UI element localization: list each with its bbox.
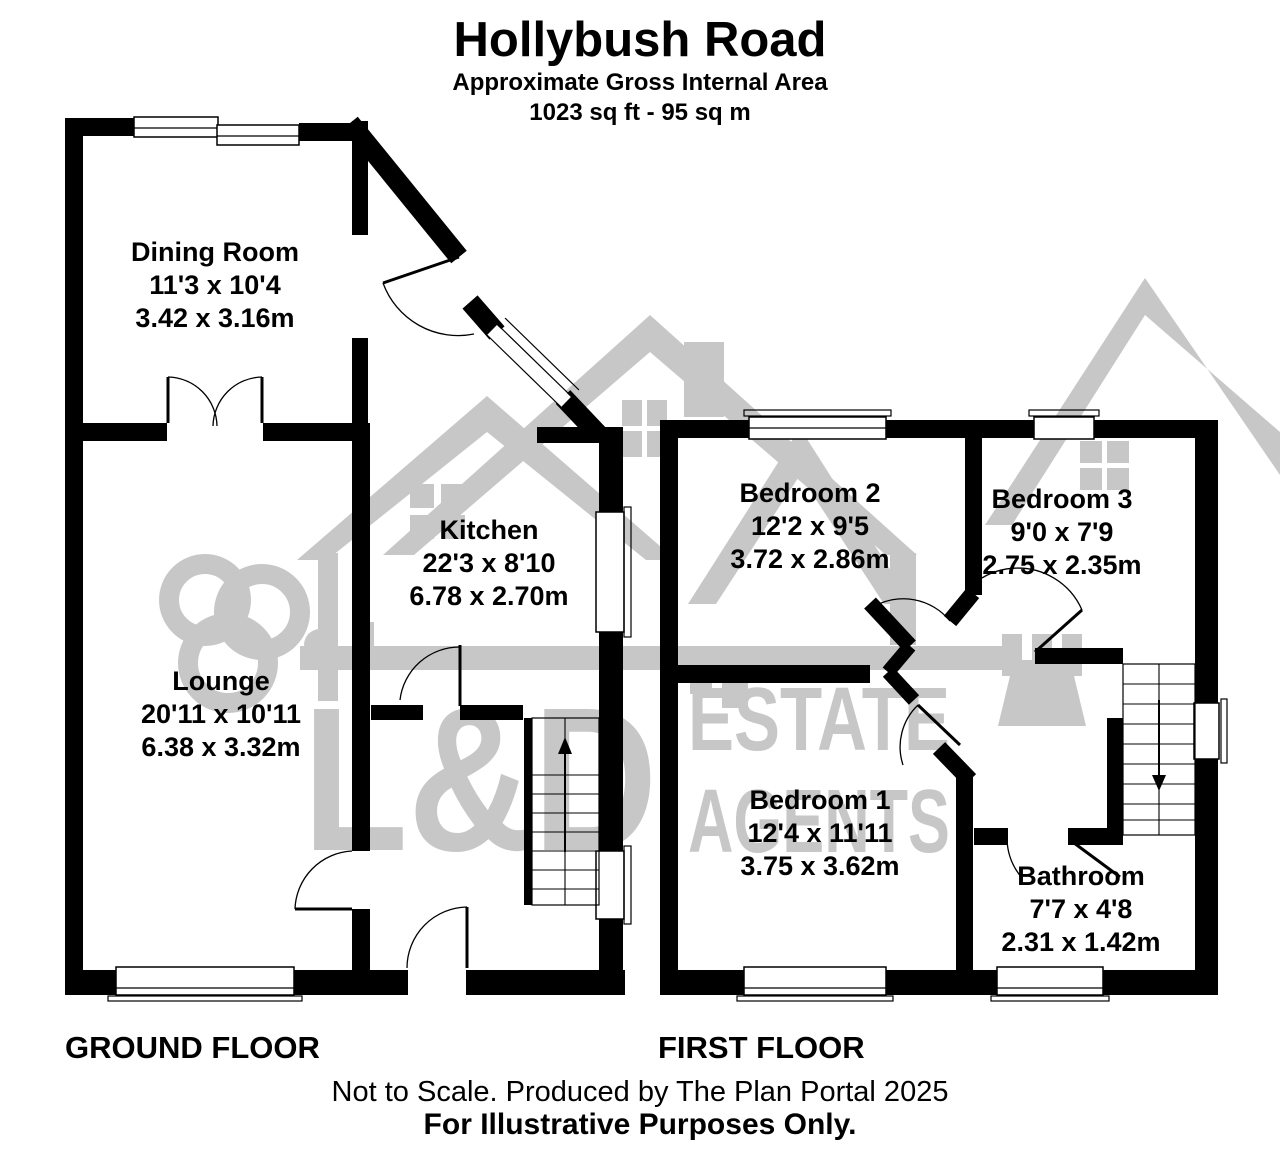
room-dims-metric: 6.78 x 2.70m: [409, 580, 568, 613]
room-label-bedroom2: Bedroom 2 12'2 x 9'5 3.72 x 2.86m: [730, 477, 889, 576]
bedroom1-window: [744, 967, 886, 995]
room-name: Bathroom: [1001, 860, 1160, 893]
room-dims-metric: 3.72 x 2.86m: [730, 543, 889, 576]
page-title: Hollybush Road: [0, 14, 1280, 68]
watermark-text-estate: ESTATE: [688, 670, 950, 770]
first-floor-stairs: [1123, 664, 1195, 835]
room-label-bathroom: Bathroom 7'7 x 4'8 2.31 x 1.42m: [1001, 860, 1160, 959]
room-dims-imperial: 9'0 x 7'9: [982, 516, 1141, 549]
room-dims-metric: 2.75 x 2.35m: [982, 549, 1141, 582]
watermark-chimney: [684, 342, 724, 417]
room-dims-imperial: 12'4 x 11'11: [740, 817, 899, 850]
lounge-window: [116, 967, 294, 995]
bathroom-window: [997, 967, 1103, 995]
floorplan-page: L&D ESTATE AGENTS: [0, 0, 1280, 1160]
room-dims-metric: 3.42 x 3.16m: [131, 302, 299, 335]
room-dims-imperial: 22'3 x 8'10: [409, 547, 568, 580]
bed3-bottom-wall: [1035, 648, 1123, 664]
room-dims-metric: 2.31 x 1.42m: [1001, 926, 1160, 959]
room-dims-imperial: 11'3 x 10'4: [131, 269, 299, 302]
entrance-door: [383, 257, 474, 336]
hall-window: [596, 851, 624, 919]
bedroom3-window: [1034, 417, 1094, 439]
first-floor-label: FIRST FLOOR: [658, 1030, 865, 1066]
room-label-dining: Dining Room 11'3 x 10'4 3.42 x 3.16m: [131, 236, 299, 335]
room-label-kitchen: Kitchen 22'3 x 8'10 6.78 x 2.70m: [409, 514, 568, 613]
room-dims-imperial: 20'11 x 10'11: [141, 698, 301, 731]
room-dims-imperial: 7'7 x 4'8: [1001, 893, 1160, 926]
gross-area: 1023 sq ft - 95 sq m: [0, 100, 1280, 126]
kitchen-window: [596, 512, 624, 632]
room-label-bedroom1: Bedroom 1 12'4 x 11'11 3.75 x 3.62m: [740, 784, 899, 883]
footer-illustrative-note: For Illustrative Purposes Only.: [0, 1108, 1280, 1142]
bed2-bed3-divider-wall: [965, 438, 982, 595]
room-name: Lounge: [141, 665, 301, 698]
room-name: Kitchen: [409, 514, 568, 547]
dining-window-2: [217, 125, 299, 145]
room-name: Bedroom 1: [740, 784, 899, 817]
footer-disclaimer: Not to Scale. Produced by The Plan Porta…: [0, 1076, 1280, 1109]
front-door: [407, 907, 467, 968]
room-dims-metric: 3.75 x 3.62m: [740, 850, 899, 883]
room-name: Bedroom 2: [730, 477, 889, 510]
bed2-bottom-wall: [678, 665, 870, 683]
stairwell-wall: [1107, 718, 1123, 828]
room-name: Dining Room: [131, 236, 299, 269]
ground-floor-label: GROUND FLOOR: [65, 1030, 320, 1066]
page-subtitle: Approximate Gross Internal Area: [0, 70, 1280, 96]
watermark-gate-icon: [998, 634, 1086, 726]
room-dims-metric: 6.38 x 3.32m: [141, 731, 301, 764]
dining-lounge-double-door: [168, 377, 262, 426]
room-dims-imperial: 12'2 x 9'5: [730, 510, 889, 543]
room-label-lounge: Lounge 20'11 x 10'11 6.38 x 3.32m: [141, 665, 301, 764]
porch-diagonal-window: [487, 318, 579, 407]
room-label-bedroom3: Bedroom 3 9'0 x 7'9 2.75 x 2.35m: [982, 483, 1141, 582]
landing-window: [1194, 703, 1219, 759]
bed1-bathroom-divider-wall: [956, 775, 973, 970]
room-name: Bedroom 3: [982, 483, 1141, 516]
